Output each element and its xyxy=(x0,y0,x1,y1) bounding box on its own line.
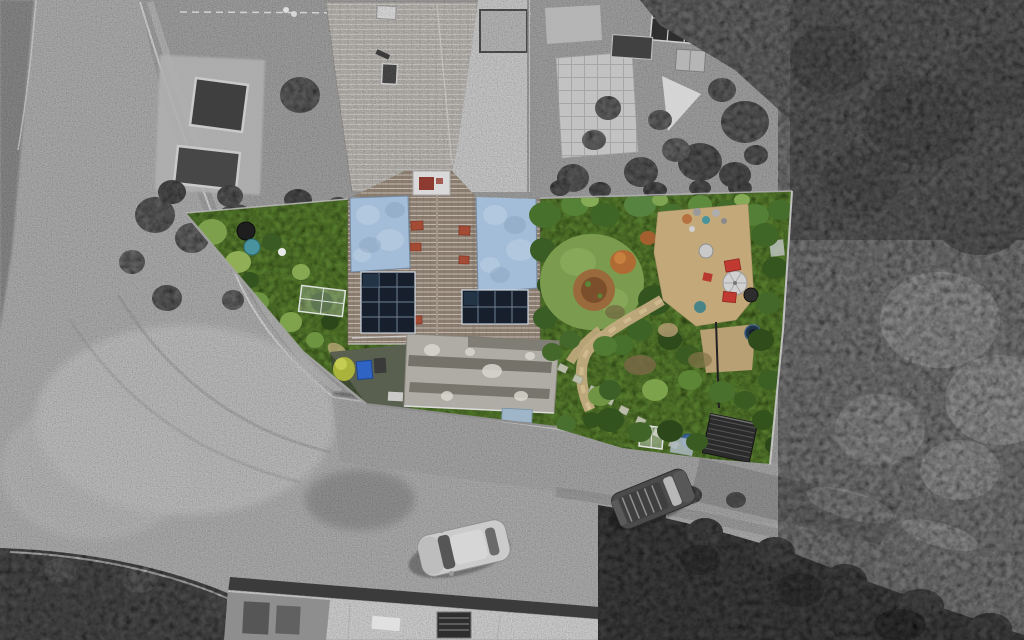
wheelie-bin-blue xyxy=(356,360,373,379)
gravel-spur xyxy=(658,323,678,337)
garden-chair-red-2 xyxy=(723,291,737,302)
rooftop-unit xyxy=(275,605,300,634)
dirt-patch xyxy=(605,305,625,319)
aerial-photo-stage xyxy=(0,0,1024,640)
white-object xyxy=(291,11,297,17)
driveway-framed-panel xyxy=(480,10,527,52)
cold-frame-left xyxy=(299,285,346,316)
rooftop-unit xyxy=(242,601,270,634)
front-rooflight xyxy=(381,64,397,85)
house-front-gray xyxy=(326,0,530,192)
pot xyxy=(689,226,695,232)
roof-stairwell xyxy=(437,612,471,638)
neighbor-upper-paving xyxy=(545,5,602,44)
raised-bed-1 xyxy=(190,78,248,132)
glazed-panel xyxy=(611,35,652,60)
teal-tub xyxy=(694,301,706,313)
dirt-patch xyxy=(688,352,712,368)
solar-array-left xyxy=(361,272,415,333)
autumn-shrub-highlight xyxy=(614,252,626,264)
chimney-pot-red-2 xyxy=(436,178,443,184)
front-skylight xyxy=(377,6,397,20)
aerial-photo xyxy=(0,0,1024,640)
chimney-pot-red xyxy=(419,177,434,190)
dark-planter xyxy=(744,288,758,302)
raised-bed-2 xyxy=(174,146,240,190)
white-ball xyxy=(278,248,286,256)
autumn-shrub-small xyxy=(640,231,656,245)
parasol-hub xyxy=(733,281,737,285)
pot-teal xyxy=(702,216,710,224)
flat-roof-right xyxy=(476,194,537,293)
white-object xyxy=(283,7,289,13)
wheelie-bin-dark xyxy=(374,358,387,374)
flat-roof-left xyxy=(350,196,410,272)
dirt-patch xyxy=(624,355,656,375)
chimney xyxy=(413,171,450,195)
water-butt-black xyxy=(237,222,255,240)
roof-white-object xyxy=(371,616,400,631)
garden-chair-red-1 xyxy=(724,259,741,272)
bbq-kettle xyxy=(699,244,713,258)
neighbor-shed xyxy=(675,49,705,72)
pot xyxy=(712,209,720,217)
pot xyxy=(682,214,692,224)
solar-array-right xyxy=(462,290,528,324)
pot xyxy=(721,218,727,224)
junction-light-patch-2 xyxy=(0,400,190,540)
circular-flower-bed-center xyxy=(581,277,607,303)
door-step xyxy=(388,392,403,402)
solar-glare xyxy=(464,292,479,305)
water-butt-teal xyxy=(244,239,260,255)
yellow-bush-highlight xyxy=(335,358,347,370)
road-tree-shadow xyxy=(305,470,415,530)
pot xyxy=(693,208,701,216)
solar-glare xyxy=(363,274,379,287)
